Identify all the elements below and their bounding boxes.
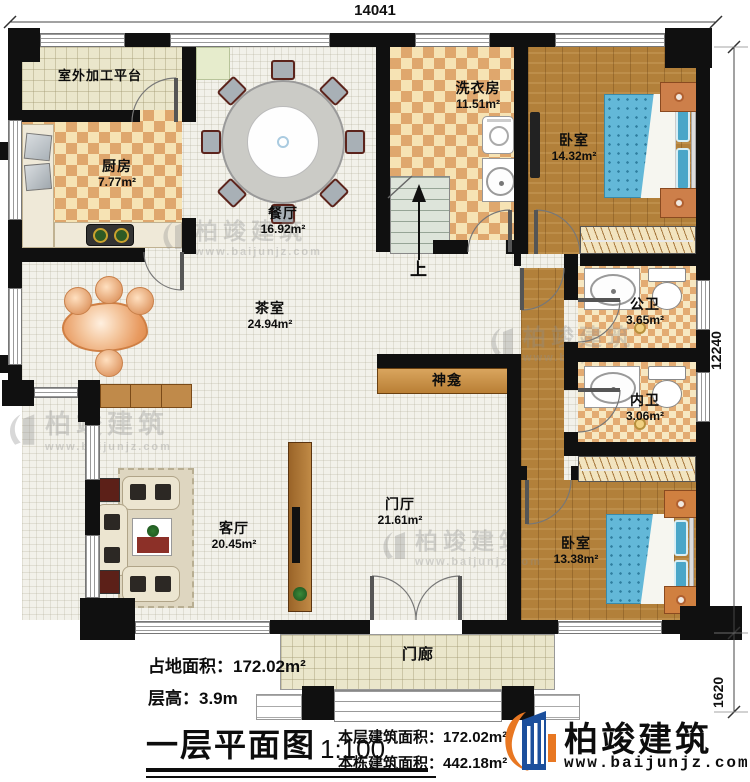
floor-plan-canvas: 柏竣建筑 www.baijunjz.com 柏竣建筑 www.baijunjz.… bbox=[0, 0, 750, 782]
total-area-text: 本栋建筑面积：442.18m² bbox=[338, 752, 507, 773]
floor-height-text: 层高：3.9m bbox=[148, 684, 238, 709]
land-area-text: 占地面积：172.02m² bbox=[148, 652, 306, 677]
room-label-dining: 餐厅 16.92m² bbox=[245, 205, 321, 236]
floor-area-text: 本层建筑面积：172.02m² bbox=[338, 726, 507, 747]
plan-title: 一层平面图 bbox=[146, 720, 316, 766]
floor-height-value: 3.9m bbox=[199, 689, 238, 708]
dimension-right-height: 12240 bbox=[708, 290, 724, 370]
dimension-porch-depth: 1620 bbox=[710, 648, 726, 708]
room-label-public-bath: 公卫 3.65m² bbox=[600, 296, 690, 327]
floor-area-value: 172.02m² bbox=[443, 729, 507, 746]
room-label-private-bath: 内卫 3.06m² bbox=[600, 392, 690, 423]
stairs-up-label: 上 bbox=[405, 260, 433, 280]
brand-website: www.baijunjz.com bbox=[564, 754, 750, 772]
floor-area-label: 本层建筑面积： bbox=[338, 729, 443, 746]
door-arcs-layer bbox=[0, 0, 750, 782]
room-label-platform: 室外加工平台 bbox=[30, 68, 170, 84]
room-label-bedroom1: 卧室 14.32m² bbox=[536, 132, 612, 163]
room-label-bedroom2: 卧室 13.38m² bbox=[538, 535, 614, 566]
land-area-value: 172.02m² bbox=[233, 657, 306, 676]
total-area-label: 本栋建筑面积： bbox=[338, 755, 443, 772]
dimension-top-width: 14041 bbox=[330, 2, 420, 19]
room-label-laundry: 洗衣房 11.51m² bbox=[440, 80, 516, 111]
floor-height-label: 层高： bbox=[148, 689, 199, 708]
plan-title-underline-thin bbox=[146, 776, 436, 778]
total-area-value: 442.18m² bbox=[443, 755, 507, 772]
room-label-living-room: 客厅 20.45m² bbox=[196, 520, 272, 551]
room-label-foyer: 门厅 21.61m² bbox=[362, 496, 438, 527]
land-area-label: 占地面积： bbox=[148, 657, 233, 676]
room-label-porch: 门廊 bbox=[380, 646, 456, 664]
room-label-shrine: 神龛 bbox=[377, 372, 517, 389]
room-label-kitchen: 厨房 7.77m² bbox=[82, 158, 152, 189]
brand-logo-icon bbox=[500, 706, 558, 776]
room-label-tea-room: 茶室 24.94m² bbox=[232, 300, 308, 331]
